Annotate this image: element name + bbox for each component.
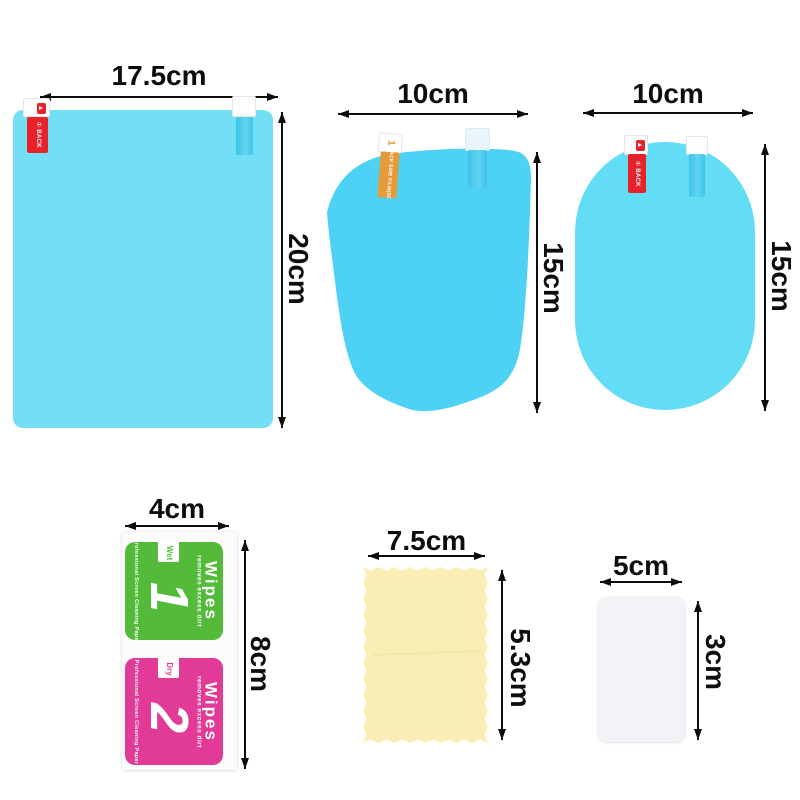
wipe-type-notch: Dry <box>158 658 179 678</box>
red-tab-number: ① <box>35 122 41 127</box>
oval-film-width-label: 10cm <box>583 80 753 108</box>
card-width-label: 5cm <box>600 552 682 580</box>
product-size-diagram: 17.5cm ① BACK 20cm 10cm 1 BACK SIDE FILM… <box>0 0 800 800</box>
wipes-width-label: 4cm <box>125 495 229 523</box>
mirror-film-width-arrow <box>338 113 528 115</box>
wipe-type-text: Wet <box>165 546 173 561</box>
wipe-brand: Wipes <box>203 682 220 742</box>
oval-film-red-tab: ① BACK <box>628 154 646 193</box>
large-film-blue-tab-cap <box>232 96 256 117</box>
wipe-step-number: 1 <box>142 582 196 612</box>
wipe-edge-text: Professional Screen Cleaning Paper <box>133 659 139 764</box>
peel-icon <box>636 140 645 151</box>
wipes-height-label: 8cm <box>246 636 274 692</box>
orange-tab-number: 1 <box>385 140 395 146</box>
large-film-height-label: 20cm <box>284 233 312 305</box>
cleaning-cloth <box>363 567 488 743</box>
squeegee-card <box>598 597 685 742</box>
oval-film-height-label: 15cm <box>767 240 795 312</box>
wipe-edge-text: Professional Screen Cleaning Paper <box>133 539 139 644</box>
wipe-brand: Wipes <box>203 561 220 621</box>
cloth-width-label: 7.5cm <box>368 527 485 555</box>
large-film-sheet <box>13 110 273 428</box>
oval-film-blue-tab-cap <box>686 136 708 155</box>
mirror-film-orange-tab: 1 BACK SIDE FILM(SET <box>374 132 403 200</box>
wipe-type-notch: Wet <box>158 542 179 562</box>
red-tab-text: BACK <box>35 129 41 148</box>
cloth-height-label: 5.3cm <box>506 628 534 707</box>
card-height-label: 3cm <box>701 634 729 690</box>
large-film-width-label: 17.5cm <box>40 62 278 90</box>
red-tab-number: ① <box>634 161 640 166</box>
mirror-film-blue-tab <box>468 150 487 188</box>
cloth-height-arrow <box>501 570 503 740</box>
peel-icon <box>37 103 46 114</box>
mirror-film-width-label: 10cm <box>338 80 528 108</box>
wipe-type-text: Dry <box>165 662 173 675</box>
large-film-red-tab-cap <box>23 98 50 117</box>
large-film-red-tab: ① BACK <box>27 117 48 153</box>
oval-film-width-arrow <box>583 112 753 114</box>
dry-wipe-label: Dry Wipes removes excess dirt 2 Professi… <box>125 658 223 765</box>
card-height-arrow <box>697 601 699 740</box>
wipes-packet: Wet Wipes removes excess dirt 1 Professi… <box>122 532 237 770</box>
orange-tab-body: BACK SIDE FILM(SET <box>377 151 399 198</box>
oval-film-sheet <box>575 142 755 410</box>
mirror-film-blue-tab-cap <box>465 128 490 151</box>
oval-film-blue-tab <box>689 154 705 197</box>
wet-wipe-label: Wet Wipes removes excess dirt 1 Professi… <box>125 542 223 640</box>
wipe-step-number: 2 <box>142 703 196 733</box>
cloth-width-arrow <box>368 555 485 557</box>
wipes-width-arrow <box>125 525 229 527</box>
red-tab-text: BACK <box>634 168 640 187</box>
card-width-arrow <box>600 581 682 583</box>
orange-tab-text: BACK SIDE FILM(SET <box>384 151 393 198</box>
large-film-blue-tab <box>236 117 253 155</box>
oval-film-red-tab-cap <box>624 135 648 155</box>
mirror-film-height-label: 15cm <box>539 242 567 314</box>
mirror-film-sheet <box>323 147 533 413</box>
